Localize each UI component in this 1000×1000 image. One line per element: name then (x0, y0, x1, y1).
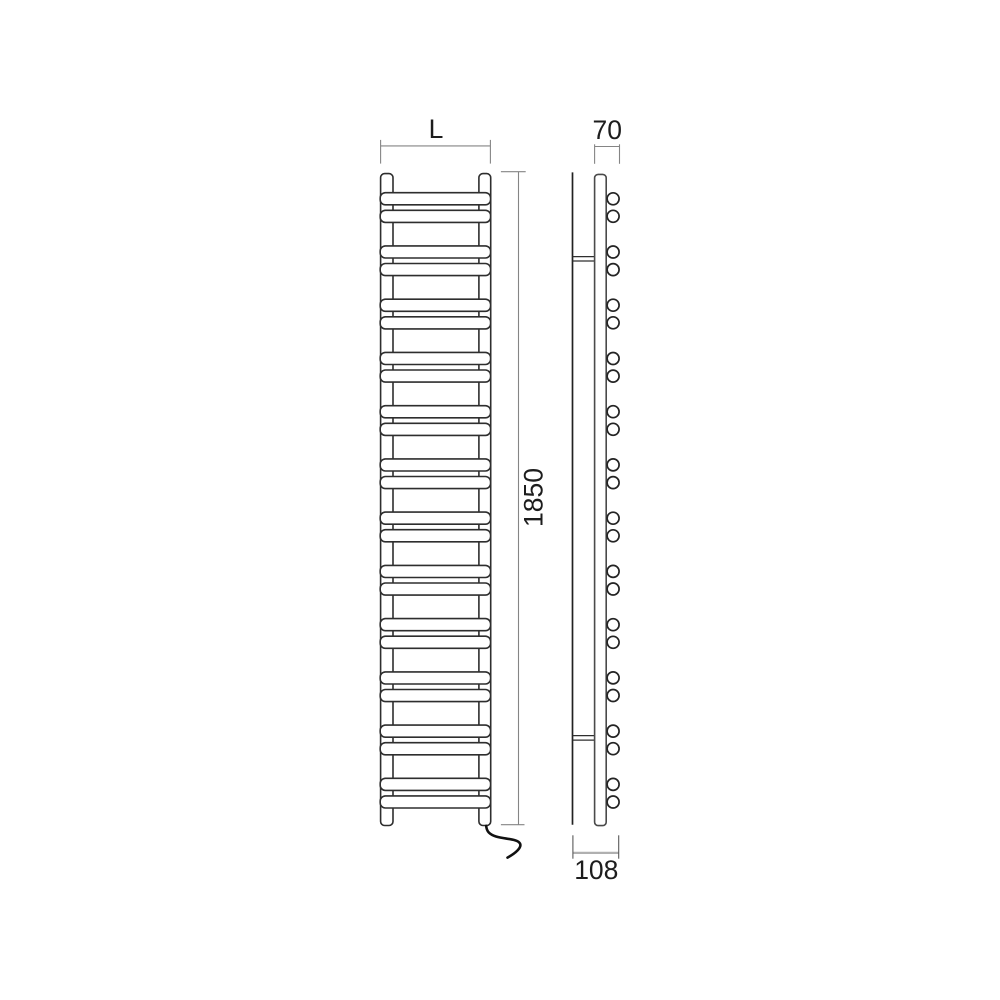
svg-text:70: 70 (592, 115, 621, 145)
svg-text:108: 108 (574, 855, 618, 885)
svg-text:1850: 1850 (519, 468, 549, 527)
svg-text:L: L (429, 114, 444, 144)
